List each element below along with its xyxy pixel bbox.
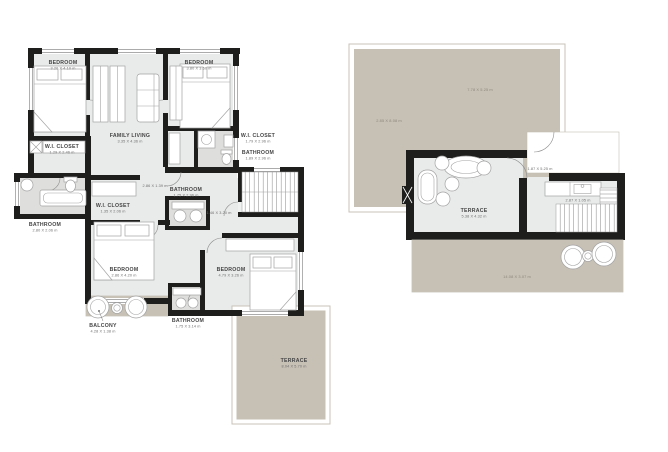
dims-stairs: 1.46 X 3.20 m <box>207 211 232 215</box>
dims-bathroom-mid: 1.75 X 2.96 m <box>174 194 199 198</box>
window <box>298 252 304 290</box>
dims-bathroom-bottom: 1.75 X 3.14 m <box>176 325 201 329</box>
window <box>233 138 239 160</box>
kitchenette-icon <box>545 182 601 196</box>
dims-bedroom-top-left: 3.20 X 4.10 m <box>51 67 76 71</box>
dims-kitchen: 2.87 X 1.05 m <box>566 199 591 203</box>
label-bedroom-top-right: BEDROOM <box>185 60 214 66</box>
label-wi-closet-mid: W.I. CLOSET <box>96 203 131 209</box>
wardrobe-icon <box>170 66 182 120</box>
sink-icon <box>21 179 33 191</box>
label-bathroom-left: BATHROOM <box>29 222 61 228</box>
wardrobe-icon <box>169 133 180 164</box>
window <box>118 48 156 54</box>
dims-terrace-left: 8.04 X 5.70 m <box>282 365 307 369</box>
dims-wi-closet-left: 1.29 X 2.46 m <box>50 151 75 155</box>
label-bedroom-top-left: BEDROOM <box>49 60 78 66</box>
window <box>180 48 220 54</box>
label-balcony: BALCONY <box>89 323 117 329</box>
window <box>242 310 288 316</box>
dims-corridor: 1.87 X 5.25 m <box>528 167 553 171</box>
label-terrace-left: TERRACE <box>281 358 308 364</box>
label-bedroom-lower-right: BEDROOM <box>217 267 246 273</box>
dims-hall: 2.86 X 1.39 m <box>143 184 168 188</box>
roof-terrace-plan: 7.78 X 5.25 m 2.85 X 8.08 m 1.87 X 5.25 … <box>349 44 625 292</box>
dims-family-living: 3.35 X 4.36 m <box>118 140 143 144</box>
window-marker-icon <box>402 186 413 204</box>
stairs-icon <box>242 172 298 212</box>
bed-icon <box>250 254 296 310</box>
dims-bedroom-lower-left: 2.86 X 4.20 m <box>112 274 137 278</box>
closet-shelf-icon <box>92 182 136 196</box>
chair-icon <box>436 192 450 206</box>
bed-icon <box>180 64 230 128</box>
dims-roof-left: 2.85 X 8.08 m <box>376 118 402 123</box>
floor-plan-drawing: BEDROOM 3.20 X 4.10 m BEDROOM 3.80 X 3.6… <box>0 0 668 452</box>
sofa-icon <box>137 74 159 122</box>
dims-bedroom-lower-right: 4.79 X 3.26 m <box>219 274 244 278</box>
chair-icon <box>435 156 449 170</box>
label-bathroom-bottom: BATHROOM <box>172 318 204 324</box>
dims-balcony: 4.28 X 1.38 m <box>91 330 116 334</box>
window <box>28 68 34 110</box>
chair-icon <box>477 161 491 175</box>
label-bathroom-right: BATHROOM <box>242 150 274 156</box>
label-bathroom-mid: BATHROOM <box>170 187 202 193</box>
dims-bedroom-top-right: 3.80 X 3.60 m <box>187 67 212 71</box>
chair-icon <box>445 177 459 191</box>
label-wi-closet-left: W.I. CLOSET <box>45 144 80 150</box>
dims-wi-closet-mid: 1.35 X 2.06 m <box>101 210 126 214</box>
first-floor-plan: BEDROOM 3.20 X 4.10 m BEDROOM 3.80 X 3.6… <box>14 48 330 424</box>
floor-plan-sheet: BEDROOM 3.20 X 4.10 m BEDROOM 3.80 X 3.6… <box>0 0 668 452</box>
dims-bathroom-left: 2.80 X 2.06 m <box>33 229 58 233</box>
toilet-icon <box>221 150 232 165</box>
label-family-living: FAMILY LIVING <box>110 133 150 139</box>
label-bedroom-lower-left: BEDROOM <box>110 267 139 273</box>
window <box>233 66 239 110</box>
window <box>42 48 74 54</box>
bathtub-icon <box>40 190 86 206</box>
sink-icon <box>224 135 233 147</box>
window <box>14 182 20 206</box>
dims-roof-lower: 14.08 X 3.07 m <box>503 274 531 279</box>
dims-bathroom-right: 1.89 X 2.96 m <box>246 157 271 161</box>
label-wi-closet-right: W.I. CLOSET <box>241 133 276 139</box>
lounge-chair-icon <box>418 170 437 204</box>
dims-terrace-right: 5.38 X 4.32 m <box>462 215 487 219</box>
label-terrace-right: TERRACE <box>461 208 488 214</box>
lower-roof <box>412 240 623 292</box>
dims-roof-upper: 7.78 X 5.25 m <box>467 87 493 92</box>
lower-roof-slab <box>412 240 623 292</box>
dims-wi-closet-right: 1.79 X 2.96 m <box>246 140 271 144</box>
bed-icon <box>34 66 86 132</box>
shower-icon <box>198 131 215 148</box>
wardrobe-icon <box>226 239 294 251</box>
